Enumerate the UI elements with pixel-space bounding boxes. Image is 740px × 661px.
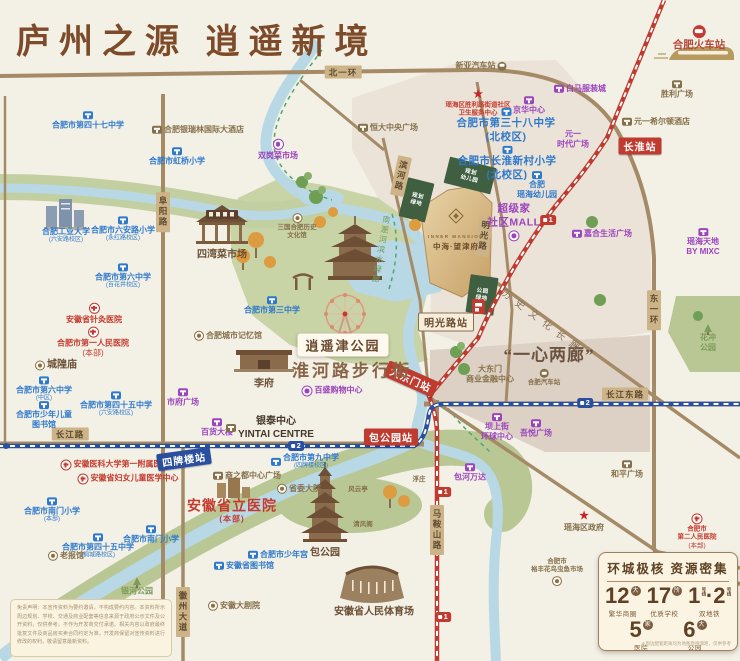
star-icon: ★ — [473, 90, 483, 101]
school-icon — [118, 263, 128, 271]
poi-biz: 省委大院 — [277, 484, 321, 494]
poi-redbig: 安徽省立医院(本部) — [187, 497, 277, 526]
mall-icon — [212, 418, 222, 426]
poi-mall: 瑶海天地BY MIXC — [686, 228, 719, 258]
stats-row-2: 5家医院6大公园 — [599, 619, 737, 652]
poi-biz: 胜利广场 — [661, 80, 693, 99]
rail-icon — [693, 25, 706, 38]
school-icon — [83, 111, 93, 119]
project-name-en: INNER MANSION — [428, 234, 484, 240]
poi-green: 花冲公园 — [700, 324, 716, 354]
biz-icon — [672, 80, 682, 88]
poi-school: 合肥市南门小学 — [123, 525, 179, 544]
poi-biz: 老报馆 — [48, 551, 84, 561]
poi-school: 合肥市第九中学(四牌楼校区) — [271, 453, 339, 471]
poi-hosp: 安徽省针灸医院 — [66, 303, 122, 325]
stats-title: 环城极核 资源密集 — [599, 558, 737, 577]
poi-hosp: 合肥市第二人民医院(本部) — [678, 513, 717, 550]
poi-hosp: 安徽省妇女儿童医学中心 — [78, 474, 179, 485]
poi-school: 合肥工业大学(六安路校区) — [42, 227, 90, 245]
dot-icon — [292, 213, 302, 223]
road-label: 长江东路 — [602, 388, 648, 401]
stat-item: 12大繁华商圈 — [605, 585, 640, 618]
poi-brown: 四湾菜市场 — [197, 249, 247, 262]
poi-biz: 合肥银瑞林国际大酒店 — [152, 125, 244, 135]
page-title: 庐州之源 逍遥新境 — [16, 14, 378, 63]
road-label: 滨河路 — [390, 155, 412, 197]
road-label: 徽州大道 — [176, 587, 190, 637]
poi-mall: 京华中心 — [513, 96, 545, 115]
poi-biz: 三国合肥历史文化馆 — [278, 213, 317, 241]
map-canvas: 合肥市第四十七中学合肥市虹桥小学合肥工业大学(六安路校区)合肥市六安路小学(永红… — [0, 0, 740, 661]
hosp-icon — [89, 303, 100, 314]
school-icon — [214, 562, 224, 570]
poi-gblock: 公园绿地 — [475, 288, 489, 303]
poi-biz: 风云亭 — [348, 486, 368, 494]
poi-biz: 合肥汽车站 — [528, 369, 561, 387]
stat-item: 17所优质学校 — [647, 585, 682, 618]
hosp-icon — [78, 474, 89, 485]
bus-icon — [498, 61, 507, 70]
school-icon — [532, 171, 542, 179]
poi-school: 合肥市六安路小学(永红路校区) — [91, 216, 155, 243]
project-name-cn: 中海·望津府 — [433, 242, 479, 252]
dot-icon — [208, 601, 218, 611]
star-icon: ★ — [579, 511, 589, 522]
dot-icon — [35, 360, 45, 370]
poi-biz: 恒大中央广场 — [358, 123, 418, 133]
poi-dark: 银泰中心YINTAI CENTRE — [226, 415, 314, 441]
biz-icon — [622, 460, 632, 468]
poi-school: 合肥市第三中学 — [244, 296, 300, 315]
poi-biz: 和平广场 — [611, 460, 643, 479]
pine-icon — [704, 324, 712, 332]
poi-brown: 安徽省人民体育场 — [334, 606, 414, 619]
poi-school: 合肥市少年宫 — [248, 550, 308, 560]
poi-brown: 包公园 — [310, 547, 340, 560]
bus-icon — [540, 369, 549, 378]
school-icon — [118, 216, 128, 224]
school-icon — [172, 147, 182, 155]
biz-icon — [358, 124, 368, 132]
biz-icon — [226, 424, 236, 432]
poi-biz: 浮庄 — [413, 476, 426, 484]
poi-mall: 元一时代广场 — [557, 130, 589, 151]
poi-mall: 百盛购物中心 — [302, 386, 363, 397]
mall-icon — [465, 463, 475, 471]
biz-icon — [152, 126, 162, 134]
poi-school: 合肥市南门小学(本部) — [24, 497, 80, 524]
poi-biz: 元一希尔顿酒店 — [622, 117, 690, 127]
dot-icon — [48, 551, 58, 561]
road-label: 马鞍山路 — [430, 505, 444, 555]
poi-mall: 白马服装城 — [554, 84, 606, 94]
road-label: 阜阳路 — [156, 192, 170, 232]
metro-line-2-icon: 2 — [577, 398, 593, 408]
poi-biz: ★瑶海区政府 — [564, 511, 604, 533]
poi-school: 安徽省图书馆 — [214, 561, 274, 571]
poi-hosp: ★瑶海区胜利路街道社区卫生服务中心 — [446, 90, 511, 119]
mall-icon — [531, 419, 541, 427]
poi-mall: 嘉合生活广场 — [572, 229, 632, 239]
poi-biz: 大东门商业金融中心 — [466, 365, 514, 386]
hosp-icon — [692, 513, 703, 524]
metro-line-1-icon: 1 — [435, 487, 451, 497]
mall-icon — [492, 413, 502, 421]
stat-item: 1号线·2号线双地铁 — [688, 585, 731, 618]
poi-gblock: 规划绿地 — [410, 192, 425, 208]
road-label: 北一环 — [325, 66, 362, 79]
big-label: 南淝河滨水绿廊 — [370, 215, 393, 286]
dot-icon — [277, 484, 287, 494]
poi-school: 合肥瑶海幼儿园 — [517, 171, 557, 201]
mall-icon — [178, 388, 188, 396]
metro-line-1-icon: 1 — [540, 215, 556, 225]
hosp-icon — [61, 460, 72, 471]
station-badge: 长淮站 — [619, 138, 662, 155]
poi-biz: 商之都中心广场 — [213, 471, 281, 481]
metro-line-1-icon: 1 — [435, 612, 451, 622]
big-label: 逍遥津公园 — [297, 334, 388, 357]
school-icon — [47, 497, 57, 505]
poi-biz: 合肥城市记忆馆 — [194, 331, 262, 341]
biz-icon — [213, 472, 223, 480]
poi-school: 合肥市第四十七中学 — [52, 111, 124, 130]
disclaimer-box: 免责声明：本宣传资料为要约邀请，不构成要约内容。本资料所示周边规划、学校、交通及… — [10, 599, 172, 657]
poi-hosp: 安徽医科大学第一附属医院 — [61, 460, 170, 471]
poi-trainred: 合肥火车站 — [673, 25, 726, 53]
circle-icon — [508, 231, 519, 242]
stat-item: 5家医院 — [630, 619, 653, 652]
poi-school: 合肥市第六中学(中区) — [16, 376, 72, 403]
school-icon — [271, 458, 281, 466]
mall-icon — [524, 96, 534, 104]
poi-mall: 双岗菜市场 — [258, 139, 298, 161]
station-badge: 包公园站 — [364, 429, 418, 446]
road-label: 东一环 — [647, 290, 661, 330]
poi-mall: 包河万达 — [454, 463, 486, 482]
poi-brown: 城隍庙 — [35, 359, 77, 372]
hosp-icon — [88, 327, 99, 338]
poi-biz: 安徽大剧院 — [208, 601, 260, 611]
stats-panel: 环城极核 资源密集 12大繁华商圈17所优质学校1号线·2号线双地铁 5家医院6… — [598, 552, 738, 651]
dot-icon — [194, 331, 204, 341]
school-icon — [267, 296, 277, 304]
station-badge: 四牌楼站 — [156, 447, 212, 471]
stat-item: 6大公园 — [683, 619, 706, 652]
school-icon — [146, 525, 156, 533]
poi-school: 合肥市少年儿童图书馆 — [16, 401, 72, 431]
school-icon — [502, 146, 512, 154]
stats-row-1: 12大繁华商圈17所优质学校1号线·2号线双地铁 — [599, 585, 737, 618]
poi-brown: 李府 — [254, 378, 274, 391]
circle-icon — [302, 386, 313, 397]
mall-icon — [554, 85, 564, 93]
mall-icon — [698, 228, 708, 236]
poi-school: 合肥市虹桥小学 — [149, 147, 205, 166]
poi-biz: 新亚汽车站 — [456, 61, 507, 71]
pine-icon — [133, 577, 141, 585]
circle-icon — [273, 139, 284, 150]
dot-icon — [552, 576, 562, 586]
school-icon — [39, 401, 49, 409]
stats-divider — [607, 581, 729, 582]
poi-mall: 市府广场 — [167, 388, 199, 407]
poi-biz: 清风阁 — [353, 521, 373, 529]
poi-school: 合肥市第六中学(百花井校区) — [95, 263, 151, 290]
school-icon — [39, 376, 49, 384]
station-badge: 明光路站 — [418, 313, 474, 332]
school-icon — [93, 533, 103, 541]
poi-hosp: 合肥市第一人民医院(本部) — [57, 327, 129, 360]
poi-green: 银河公园 — [121, 577, 153, 596]
mall-icon — [572, 230, 582, 238]
school-icon — [248, 551, 258, 559]
biz-icon — [622, 118, 632, 126]
big-label: 淮河路步行街 — [292, 357, 412, 382]
school-icon — [111, 391, 121, 399]
poi-school: 合肥市第四十五中学(六安路校区) — [80, 391, 152, 418]
poi-mall: 吾悦广场 — [520, 419, 552, 438]
stats-footnote: ＊周边配套距离均为地图直线测距，仅供参考 — [641, 641, 731, 647]
poi-mall: 超级家社区MALL — [487, 202, 540, 241]
poi-biz: 合肥市裕丰花鸟虫鱼市场 — [531, 558, 583, 586]
poi-mall: 坝上街环球中心 — [481, 413, 513, 443]
metro-line-2-icon: 2 — [288, 441, 304, 451]
